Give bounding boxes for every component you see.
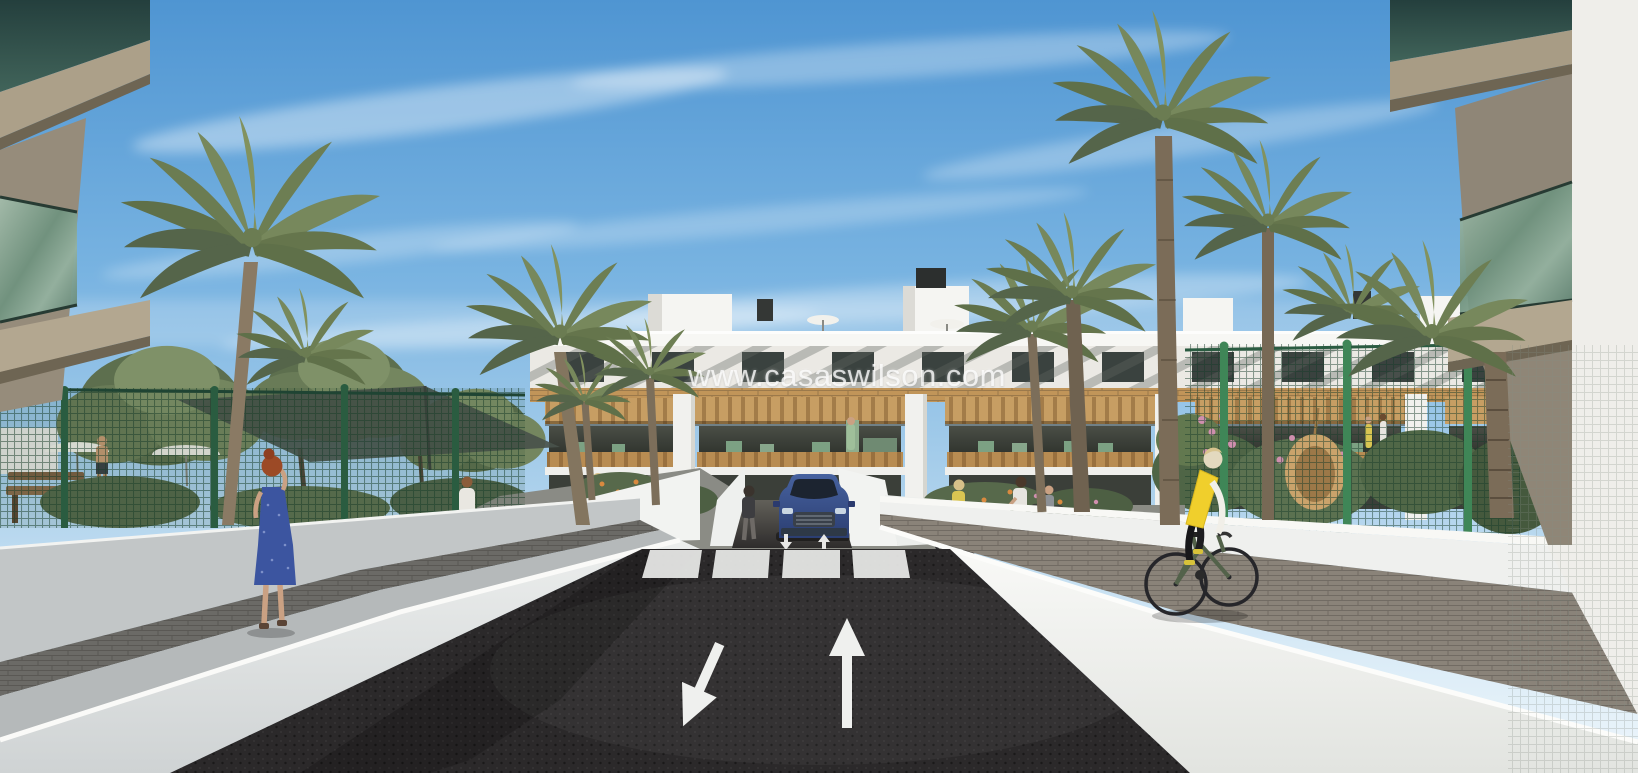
render-image: www.casaswilson.com	[0, 0, 1638, 773]
auburn-hair	[262, 456, 283, 477]
corner-mesh-fence	[1508, 345, 1638, 773]
